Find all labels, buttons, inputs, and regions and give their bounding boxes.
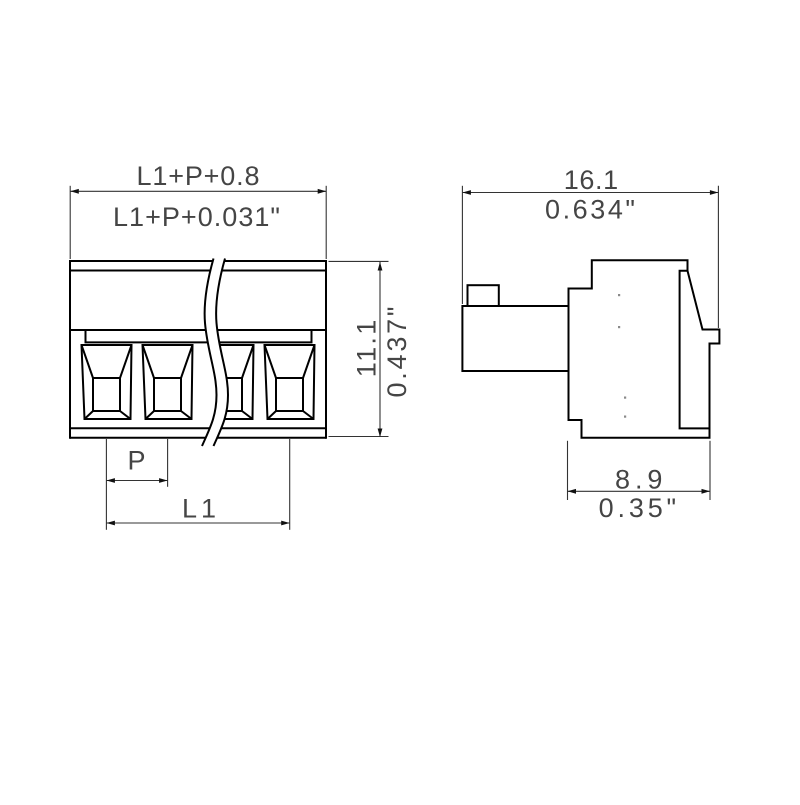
svg-text:11.1: 11.1	[352, 320, 382, 378]
svg-text:0.437": 0.437"	[382, 307, 412, 398]
svg-text:P: P	[127, 446, 145, 476]
svg-text:16.1: 16.1	[564, 165, 618, 195]
svg-text:8.9: 8.9	[615, 465, 663, 495]
svg-text:L1+P+0.8: L1+P+0.8	[137, 161, 260, 191]
svg-text:0.634": 0.634"	[545, 195, 635, 225]
svg-text:L1+P+0.031": L1+P+0.031"	[113, 202, 280, 232]
